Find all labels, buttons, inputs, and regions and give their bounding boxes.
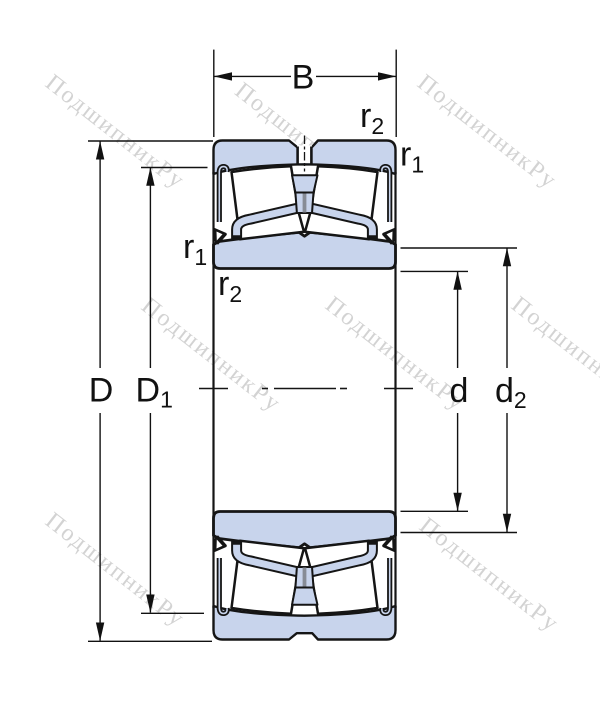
svg-text:D: D xyxy=(89,371,114,409)
svg-text:B: B xyxy=(292,59,315,97)
svg-text:d: d xyxy=(450,372,469,410)
